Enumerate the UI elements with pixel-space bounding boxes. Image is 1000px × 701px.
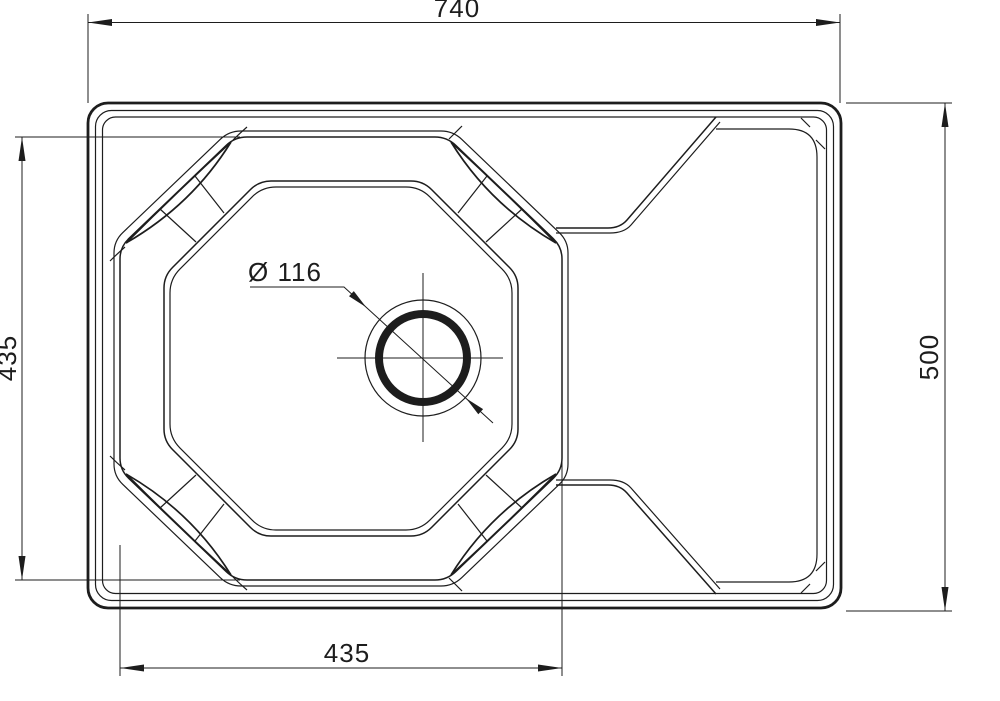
corner-flare bbox=[110, 247, 125, 261]
diameter-leader-line bbox=[250, 287, 493, 423]
leader-arrowhead bbox=[349, 291, 366, 307]
corner-tick bbox=[801, 118, 810, 127]
facet-line bbox=[486, 209, 522, 242]
technical-drawing-canvas: Ø 116 740 500 435 435 bbox=[0, 0, 1000, 701]
sink-drawing-svg: Ø 116 740 500 435 435 bbox=[0, 0, 1000, 701]
dim-arrowhead bbox=[19, 137, 26, 161]
dim-arrowhead bbox=[88, 19, 112, 26]
drain-diameter-label: Ø 116 bbox=[248, 257, 322, 287]
facet-line bbox=[458, 504, 487, 541]
facet-line bbox=[486, 475, 522, 508]
drainboard-channel-top bbox=[556, 117, 716, 228]
dim-arrowhead bbox=[19, 556, 26, 580]
drainboard-outline bbox=[556, 117, 825, 594]
facet-line bbox=[195, 504, 224, 541]
drain bbox=[337, 273, 503, 442]
dim-overall-width: 740 bbox=[88, 0, 840, 103]
chamfer-lens bbox=[451, 474, 556, 575]
facet-line bbox=[195, 176, 224, 213]
corner-tick bbox=[801, 584, 810, 593]
drainboard-channel-bottom-inner bbox=[556, 480, 720, 589]
corner-tick bbox=[816, 562, 825, 571]
overall-depth-label: 500 bbox=[914, 334, 944, 380]
dim-arrowhead bbox=[538, 665, 562, 672]
dim-overall-depth: 500 bbox=[846, 103, 952, 611]
bowl-width-label: 435 bbox=[324, 638, 370, 668]
dim-bowl-width: 435 bbox=[120, 458, 562, 676]
dim-arrowhead bbox=[120, 665, 144, 672]
dim-arrowhead bbox=[942, 103, 949, 127]
chamfer-lens bbox=[126, 474, 231, 575]
dim-arrowhead bbox=[942, 587, 949, 611]
drainboard-channel-bottom bbox=[556, 485, 716, 594]
dim-arrowhead bbox=[816, 19, 840, 26]
chamfer-lens bbox=[126, 142, 231, 243]
corner-flare bbox=[110, 456, 125, 470]
facet-line bbox=[458, 176, 487, 213]
facet-line bbox=[160, 475, 196, 508]
overall-width-label: 740 bbox=[434, 0, 480, 23]
chamfer-lens bbox=[451, 142, 556, 243]
dim-drain-diameter: Ø 116 bbox=[248, 257, 493, 423]
bowl-depth-label: 435 bbox=[0, 335, 22, 381]
drainboard-channel-top-inner bbox=[556, 122, 720, 233]
corner-tick bbox=[816, 140, 825, 149]
drainboard-surface-edge bbox=[716, 129, 817, 582]
facet-line bbox=[160, 209, 196, 242]
